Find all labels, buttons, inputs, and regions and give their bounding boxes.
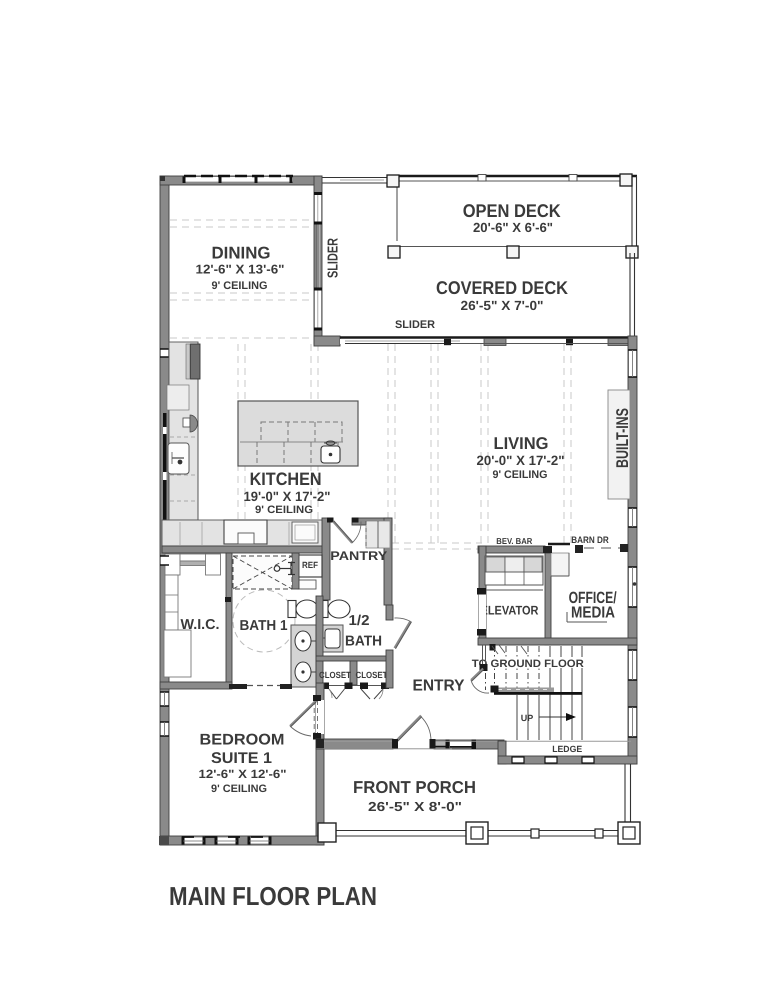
svg-text:BEDROOM: BEDROOM (200, 732, 285, 749)
svg-text:BATH: BATH (345, 634, 382, 650)
svg-text:LIVING: LIVING (494, 434, 549, 453)
svg-text:SLIDER: SLIDER (326, 238, 342, 278)
svg-text:9' CEILING: 9' CEILING (212, 280, 268, 292)
svg-text:20'-0" X 17'-2": 20'-0" X 17'-2" (477, 453, 565, 468)
svg-text:CLOSET: CLOSET (319, 670, 351, 680)
svg-text:TO GROUND FLOOR: TO GROUND FLOOR (472, 658, 584, 670)
svg-text:DINING: DINING (212, 244, 271, 263)
svg-text:BUILT-INS: BUILT-INS (613, 408, 632, 468)
svg-text:9' CEILING: 9' CEILING (493, 469, 548, 481)
svg-text:BATH 1: BATH 1 (240, 618, 288, 634)
svg-text:BEV. BAR: BEV. BAR (496, 536, 533, 546)
svg-text:PANTRY: PANTRY (330, 549, 388, 563)
svg-text:26'-5" X 7'-0": 26'-5" X 7'-0" (461, 298, 544, 313)
svg-text:ENTRY: ENTRY (413, 678, 465, 695)
svg-text:MEDIA: MEDIA (571, 605, 615, 622)
svg-text:20'-6" X 6'-6": 20'-6" X 6'-6" (473, 220, 553, 235)
svg-text:12'-6" X 13'-6": 12'-6" X 13'-6" (196, 262, 285, 277)
svg-text:SLIDER: SLIDER (395, 319, 435, 331)
svg-text:BARN DR: BARN DR (571, 534, 609, 545)
svg-text:OPEN DECK: OPEN DECK (463, 200, 562, 221)
svg-text:1/2: 1/2 (349, 613, 370, 629)
svg-text:9' CEILING: 9' CEILING (255, 504, 313, 516)
svg-text:MAIN FLOOR PLAN: MAIN FLOOR PLAN (169, 881, 377, 911)
svg-text:26'-5" X 8'-0": 26'-5" X 8'-0" (368, 799, 462, 814)
svg-text:CLOSET: CLOSET (356, 670, 388, 680)
svg-text:12'-6" X 12'-6": 12'-6" X 12'-6" (199, 767, 287, 781)
svg-text:SUITE 1: SUITE 1 (211, 750, 272, 767)
svg-text:COVERED DECK: COVERED DECK (436, 277, 569, 298)
svg-text:FRONT PORCH: FRONT PORCH (353, 777, 476, 797)
svg-text:19'-0" X 17'-2": 19'-0" X 17'-2" (244, 489, 331, 504)
svg-text:9' CEILING: 9' CEILING (211, 783, 267, 795)
svg-text:REF: REF (302, 560, 318, 570)
svg-text:W.I.C.: W.I.C. (181, 617, 220, 633)
svg-text:LEDGE: LEDGE (552, 744, 582, 754)
svg-text:UP: UP (521, 713, 534, 723)
svg-text:KITCHEN: KITCHEN (250, 469, 322, 489)
svg-text:ELEVATOR: ELEVATOR (481, 604, 539, 618)
